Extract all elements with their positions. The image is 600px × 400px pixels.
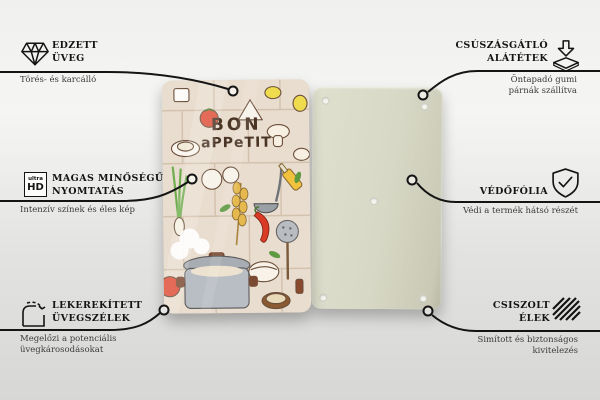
rubber-pad bbox=[421, 102, 429, 110]
rubber-pad bbox=[419, 294, 427, 302]
cutting-board-front-view: BON aPPeTIT bbox=[162, 79, 311, 314]
rubber-pad bbox=[322, 97, 330, 105]
callout-title-protective-film: VÉDŐFÓLIA bbox=[428, 185, 548, 198]
callout-desc-rounded-edges: Megelőzi a potenciális üvegkárosodásokat bbox=[20, 334, 125, 355]
ultra-hd-icon-text-bottom: HD bbox=[27, 182, 44, 193]
polished-edge-icon bbox=[551, 297, 581, 327]
anti-slip-pad-icon bbox=[550, 39, 582, 71]
rounded-corner-icon bbox=[20, 299, 48, 328]
rubber-pad bbox=[370, 197, 378, 205]
callout-desc-protective-film: Védi a termék hátsó részét bbox=[433, 206, 578, 217]
callout-desc-tempered-glass: Törés- és karcálló bbox=[20, 75, 150, 86]
callout-title-polished-edges: CSISZOLT ÉLEK bbox=[460, 299, 550, 325]
ultra-hd-icon: ultra HD bbox=[24, 172, 47, 197]
callout-desc-anti-slip: Öntapadó gumi párnák szállítva bbox=[495, 75, 577, 96]
product-feature-infographic: BON aPPeTIT EDZETT ÜVEG Törés- és karcál… bbox=[0, 0, 600, 400]
callout-title-tempered-glass: EDZETT ÜVEG bbox=[52, 39, 124, 65]
shield-check-icon bbox=[551, 167, 580, 199]
callout-desc-print-quality: Intenzív színek és éles kép bbox=[20, 205, 170, 216]
callout-desc-polished-edges: Simított és biztonságos kivitelezés bbox=[453, 335, 578, 356]
callout-title-print-quality: MAGAS MINŐSÉGŰ NYOMTATÁS bbox=[52, 172, 164, 198]
callout-title-rounded-edges: LEKEREKÍTETT ÜVEGSZÉLEK bbox=[52, 299, 142, 325]
callout-title-anti-slip: CSÚSZÁSGÁTLÓ ALÁTÉTEK bbox=[438, 39, 548, 65]
rubber-pad bbox=[319, 294, 327, 302]
board-illustration: BON aPPeTIT bbox=[162, 79, 311, 314]
cutting-board-back-view bbox=[311, 87, 443, 310]
diamond-icon bbox=[20, 40, 50, 67]
